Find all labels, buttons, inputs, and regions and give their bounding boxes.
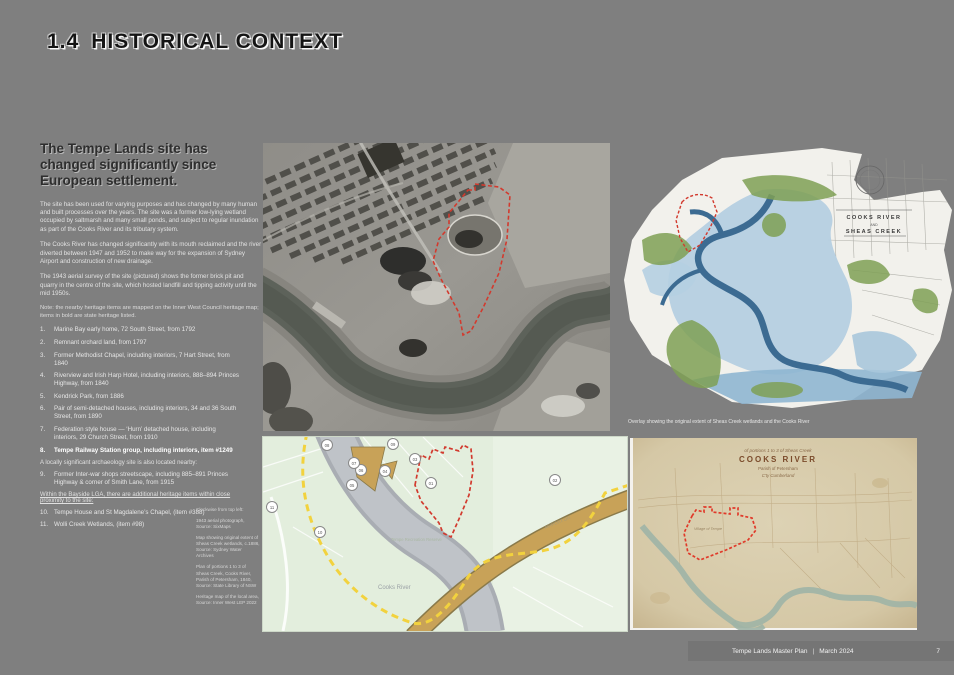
heritage-item: 3.Former Methodist Chapel, including int… xyxy=(40,352,240,368)
modern-heritage-map: Cooks River AIRPORT DR Tempe Recreation … xyxy=(263,437,627,631)
heritage-item: 6.Pair of semi-detached houses, includin… xyxy=(40,405,240,421)
intro-column: The Tempe Lands site has changed signifi… xyxy=(40,141,262,534)
village-label: Village of Tempe xyxy=(694,527,722,531)
svg-text:02: 02 xyxy=(553,478,558,483)
historic-map-caption: Overlay showing the original extent of S… xyxy=(628,419,858,425)
heritage-item: 5.Kendrick Park, from 1886 xyxy=(40,393,240,401)
svg-text:08: 08 xyxy=(325,443,330,448)
footer-page-number: 7 xyxy=(936,648,940,655)
svg-text:07: 07 xyxy=(352,461,357,466)
section-title: HISTORICAL CONTEXT xyxy=(91,30,343,53)
parchment-map-graphic: of portions 1 to 3 of Sheas Creek COOKS … xyxy=(630,438,917,630)
parchment-subtitle: of portions 1 to 3 of Sheas Creek xyxy=(744,448,812,453)
footer-date: March 2024 xyxy=(819,648,853,655)
parchment-title: COOKS RIVER xyxy=(739,455,817,464)
heritage-item: 1.Marine Bay early home, 72 South Street… xyxy=(40,326,240,334)
heritage-item: 7.Federation style house — ‘Hurn’ detach… xyxy=(40,426,240,442)
aerial-photo-1943 xyxy=(263,143,610,431)
river-label: Cooks River xyxy=(378,585,411,591)
caption: Heritage map of the local area, Source: … xyxy=(196,594,260,606)
historic-map-title-line2: AND xyxy=(870,223,878,227)
intro-heading: The Tempe Lands site has changed signifi… xyxy=(40,141,250,189)
historic-wetlands-map: COOKS RIVER AND SHEAS CREEK xyxy=(622,140,954,417)
svg-text:11: 11 xyxy=(270,505,275,510)
heritage-item-state-listed: 8.Tempe Railway Station group, including… xyxy=(40,447,240,455)
archaeology-note: A locally significant archaeology site i… xyxy=(40,460,240,466)
svg-text:10: 10 xyxy=(318,530,323,535)
modern-map-graphic: Cooks River AIRPORT DR Tempe Recreation … xyxy=(263,437,627,631)
svg-text:05: 05 xyxy=(350,483,355,488)
historic-map-title-line1: COOKS RIVER xyxy=(846,215,901,221)
heritage-note: Note: the nearby heritage items are mapp… xyxy=(40,305,262,320)
svg-text:01: 01 xyxy=(429,481,434,486)
footer-separator: | xyxy=(813,648,815,655)
additional-heritage-items: 10.Tempe House and St Magdalene’s Chapel… xyxy=(40,509,190,530)
aerial-photo-graphic xyxy=(263,143,610,431)
historic-map-graphic: COOKS RIVER AND SHEAS CREEK xyxy=(622,140,954,417)
historic-map-title-line3: SHEAS CREEK xyxy=(846,229,902,235)
svg-text:06: 06 xyxy=(359,468,364,473)
caption-intro: Clockwise from top left: xyxy=(196,507,260,513)
svg-text:03: 03 xyxy=(413,457,418,462)
parchment-line3: Parish of Petersham xyxy=(758,466,798,471)
heritage-item: 4.Riverview and Irish Harp Hotel, includ… xyxy=(40,372,240,388)
intro-paragraph: The Cooks River has changed significantl… xyxy=(40,241,262,266)
footer-bar: Tempe Lands Master Plan | March 2024 7 xyxy=(688,641,954,661)
footer-doc-title: Tempe Lands Master Plan xyxy=(732,648,808,655)
caption: 1943 aerial photograph, Source: SixMaps xyxy=(196,518,260,530)
intro-paragraph: The site has been used for varying purpo… xyxy=(40,201,262,234)
figure-captions: Clockwise from top left: 1943 aerial pho… xyxy=(196,507,260,611)
page-title: 1.4HISTORICAL CONTEXT xyxy=(47,30,343,54)
intro-paragraph: The 1943 aerial survey of the site (pict… xyxy=(40,273,262,298)
parchment-line4: C'ty Cumberland xyxy=(762,473,795,478)
svg-text:09: 09 xyxy=(391,442,396,447)
heritage-item: 9.Former Inter-war shops streetscape, in… xyxy=(40,471,240,487)
parchment-survey-plan: of portions 1 to 3 of Sheas Creek COOKS … xyxy=(630,438,917,630)
bayside-note: Within the Bayside LGA, there are additi… xyxy=(40,492,240,504)
caption: Map showing original extent of Sheas Cre… xyxy=(196,535,260,559)
section-number: 1.4 xyxy=(47,30,79,53)
report-page: 1.4HISTORICAL CONTEXT The Tempe Lands si… xyxy=(0,0,954,675)
reserve-label: Tempe Recreation Reserve xyxy=(391,537,442,542)
svg-text:04: 04 xyxy=(383,469,388,474)
heritage-item: 2.Remnant orchard land, from 1797 xyxy=(40,339,240,347)
caption: Plan of portions 1 to 3 of Sheas Creek, … xyxy=(196,564,260,588)
